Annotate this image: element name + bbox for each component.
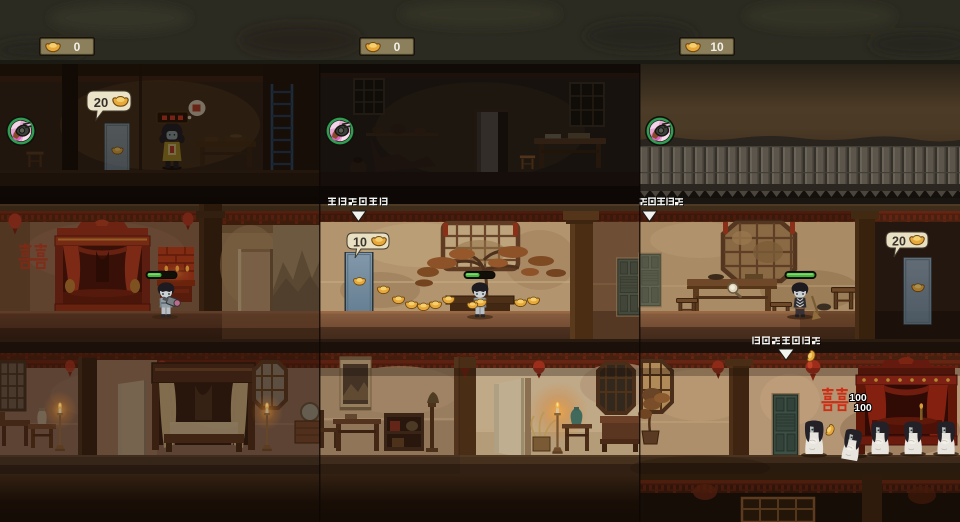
svg-text:0: 0 [394,40,401,54]
svg-text:10: 10 [353,236,367,250]
svg-text:0: 0 [74,40,81,54]
svg-text:100: 100 [854,402,872,414]
svg-text:20: 20 [892,235,906,249]
svg-text:10: 10 [710,40,724,54]
svg-text:20: 20 [94,95,108,110]
